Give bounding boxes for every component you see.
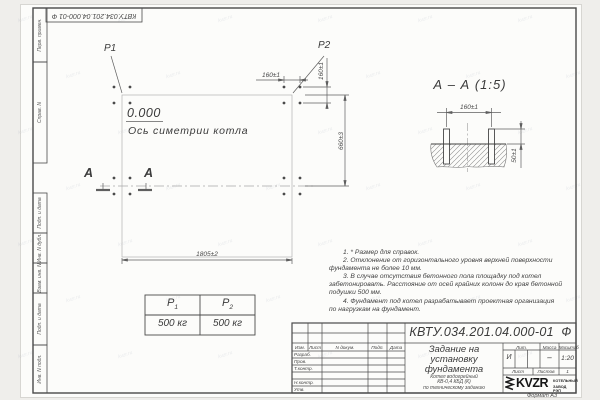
- sig-row-nkontr: Н.контр.: [294, 380, 314, 385]
- dim-label-160-right: 160±1: [318, 58, 325, 84]
- loads-table-header-p2: P2: [200, 297, 255, 311]
- note-line: 2. Отклонение от горизонтального уровня …: [329, 257, 577, 265]
- margin-label-inv-podl: Инв. N подл.: [33, 345, 47, 393]
- technical-notes: 1. * Размер для справок. 2. Отклонение о…: [329, 249, 577, 314]
- sheets-header: Листов: [533, 369, 559, 374]
- dim-label-160-section: 160±1: [447, 104, 491, 111]
- plan-p2-label: P2: [318, 40, 330, 51]
- rev-header-list: Лист: [308, 345, 322, 350]
- note-line: 1. * Размер для справок.: [329, 249, 577, 257]
- margin-label-inv-dubl: Инв. N дубл.: [33, 233, 47, 263]
- rev-header-izm: Изм.: [292, 345, 308, 350]
- note-line: по нагрузкам на фундамент.: [329, 306, 577, 314]
- rev-header-podp: Подп.: [368, 345, 387, 350]
- doc-title: Задание на установку фундамента: [405, 345, 503, 376]
- plan-p1-label: P1: [104, 43, 116, 54]
- company-logo: KVZR КОТЕЛЬНЫЙ ЗАВОД РЭП: [505, 376, 575, 392]
- plan-elevation-label: 0.000: [127, 106, 161, 120]
- drawing-page: { "watermark": "kvzr.ru", "stamp_top": "…: [0, 0, 600, 400]
- sig-row-utv: Утв.: [294, 387, 305, 392]
- lit-header: Лит.: [503, 345, 540, 350]
- margin-label-vzam-inv: Взам. инв. N: [33, 263, 47, 293]
- top-stamp-designation: КВТУ.034.201.04.000-01 Ф: [46, 8, 142, 22]
- note-line: подушки 500 мм.: [329, 289, 577, 297]
- loads-table-value-p1: 500 кг: [145, 318, 200, 329]
- plan-dimension-lines: [96, 56, 349, 264]
- margin-label-sprav-n: Справ. N: [33, 62, 47, 163]
- dim-label-1805: 1805±2: [189, 251, 225, 258]
- sig-row-tkontr: Т.контр.: [294, 366, 313, 371]
- logo-sub-1: КОТЕЛЬНЫЙ: [553, 379, 578, 383]
- rev-header-data: Дата: [387, 345, 405, 350]
- dim-label-160-top: 160±1: [255, 72, 287, 79]
- mass-value: –: [540, 353, 559, 362]
- scale-header: Масштаб: [559, 345, 576, 350]
- drawing-linework: [0, 0, 600, 400]
- sig-row-razrab: Разраб.: [294, 352, 311, 357]
- mass-header: Масса: [540, 345, 559, 350]
- product-line: по техническому заданию: [405, 386, 503, 392]
- loads-table-value-p2: 500 кг: [200, 318, 255, 329]
- lit-value: И: [503, 354, 515, 361]
- section-mark-letter-a-1: А: [84, 166, 93, 180]
- drawing-canvas: kvzr.rukvzr.rukvzr.rukvzr.rukvzr.rukvzr.…: [0, 0, 600, 400]
- margin-label-podp-data-1: Подп. и дата: [33, 193, 47, 233]
- note-line: 4. Фундамент под котел разрабатывает про…: [329, 298, 577, 306]
- sig-row-prov: Пров.: [294, 359, 306, 364]
- scale-value: 1:20: [559, 355, 576, 362]
- section-mark-letter-a-2: А: [144, 166, 153, 180]
- margin-label-perv-primen: Перв. примен.: [33, 8, 47, 62]
- title-block-designation: КВТУ.034.201.04.000-01 Ф: [406, 325, 575, 339]
- logo-sub-2: ЗАВОД РЭП: [553, 385, 575, 393]
- product-description: Котел водогрейный КВ-0,4 КБД (К) по техн…: [405, 375, 503, 393]
- sheets-value: 1: [559, 369, 576, 374]
- logo-text: KVZR: [516, 376, 548, 390]
- plan-anchor-bolts: [113, 86, 302, 196]
- margin-label-podp-data-2: Подп. и дата: [33, 293, 47, 345]
- plan-axis-label: Ось симетрии котла: [128, 125, 248, 137]
- dim-label-660: 660±3: [338, 124, 345, 158]
- loads-table-header-p1: P1: [145, 297, 200, 311]
- dim-label-50-section: 50±1: [511, 144, 518, 167]
- format-label: Формат А3: [512, 393, 572, 399]
- sheet-header: Лист: [503, 369, 533, 374]
- rev-header-docum: N докум.: [322, 345, 368, 350]
- spring-icon: [505, 376, 515, 392]
- section-view-title: А – А (1:5): [425, 77, 515, 92]
